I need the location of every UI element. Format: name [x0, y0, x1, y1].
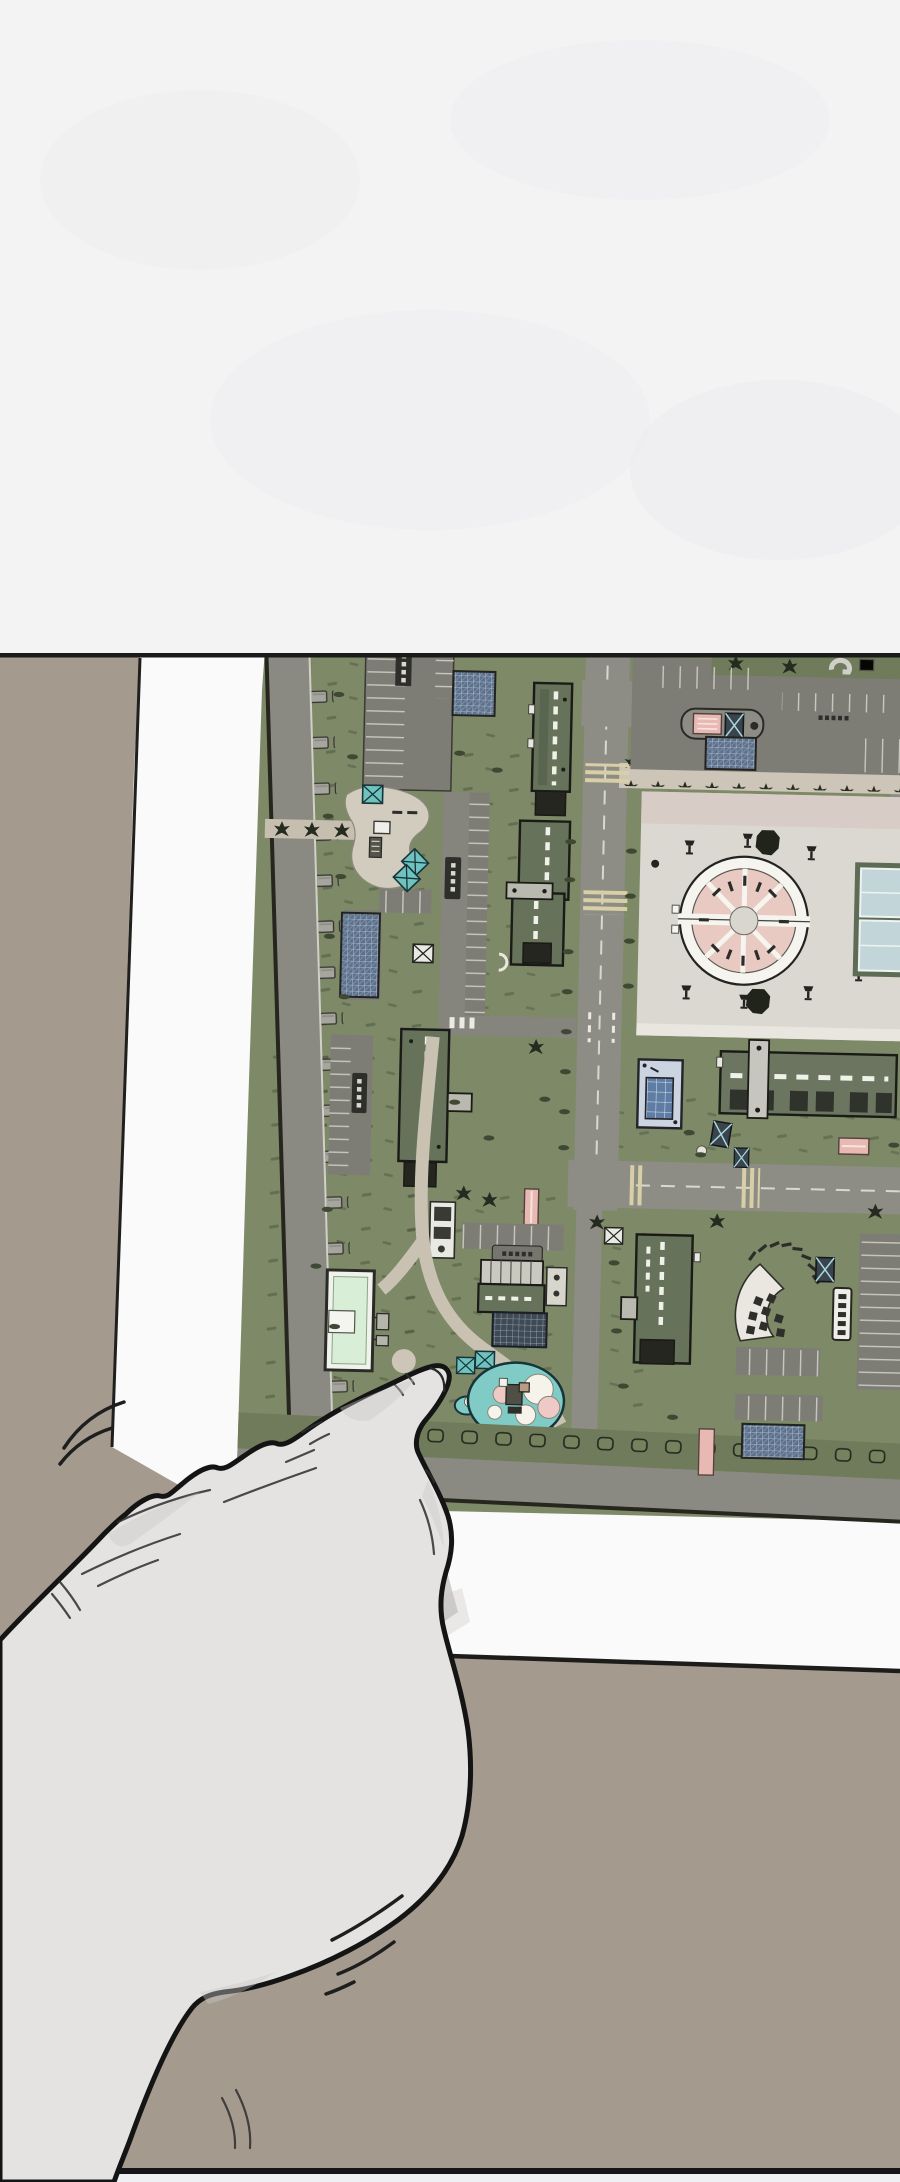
site-plan-map: [226, 623, 900, 1524]
vent-box: [710, 1121, 732, 1148]
parking-lot-northwest: [363, 643, 454, 791]
trampoline-x: [475, 1351, 494, 1369]
parking-lot-northeast: [630, 649, 900, 775]
bike-canopy-hatched: [705, 737, 756, 770]
panel-bottom-edge: [0, 2168, 900, 2182]
comic-panel-top: [0, 0, 900, 658]
x-canopy: [413, 944, 433, 962]
sandbox-x: [362, 785, 382, 803]
vent-box: [734, 1148, 749, 1168]
crosswalk: [585, 763, 629, 786]
x-canopy: [605, 1228, 623, 1245]
bike-canopy-hatched: [742, 1424, 805, 1459]
mid-road: [567, 1160, 900, 1215]
panel-border: [0, 653, 900, 658]
glass-roof-building: [637, 1059, 683, 1128]
vent-box: [725, 713, 744, 737]
vent-box: [816, 1257, 835, 1281]
parking-lot-west: [328, 1034, 373, 1175]
crosswalk: [739, 1168, 760, 1208]
crosswalk: [628, 1165, 645, 1205]
pergola-hatched: [492, 1312, 547, 1347]
trampoline-x: [457, 1357, 475, 1374]
utility-structure: [429, 1202, 455, 1259]
sports-courts: [853, 862, 900, 977]
wayfinding-sign: [832, 1288, 851, 1340]
bike-canopy-hatched: [452, 671, 495, 716]
comic-page: [0, 0, 900, 2182]
bike-canopy-hatched: [340, 913, 380, 998]
crosswalk: [583, 890, 628, 915]
gate-path-pink: [698, 1429, 714, 1475]
